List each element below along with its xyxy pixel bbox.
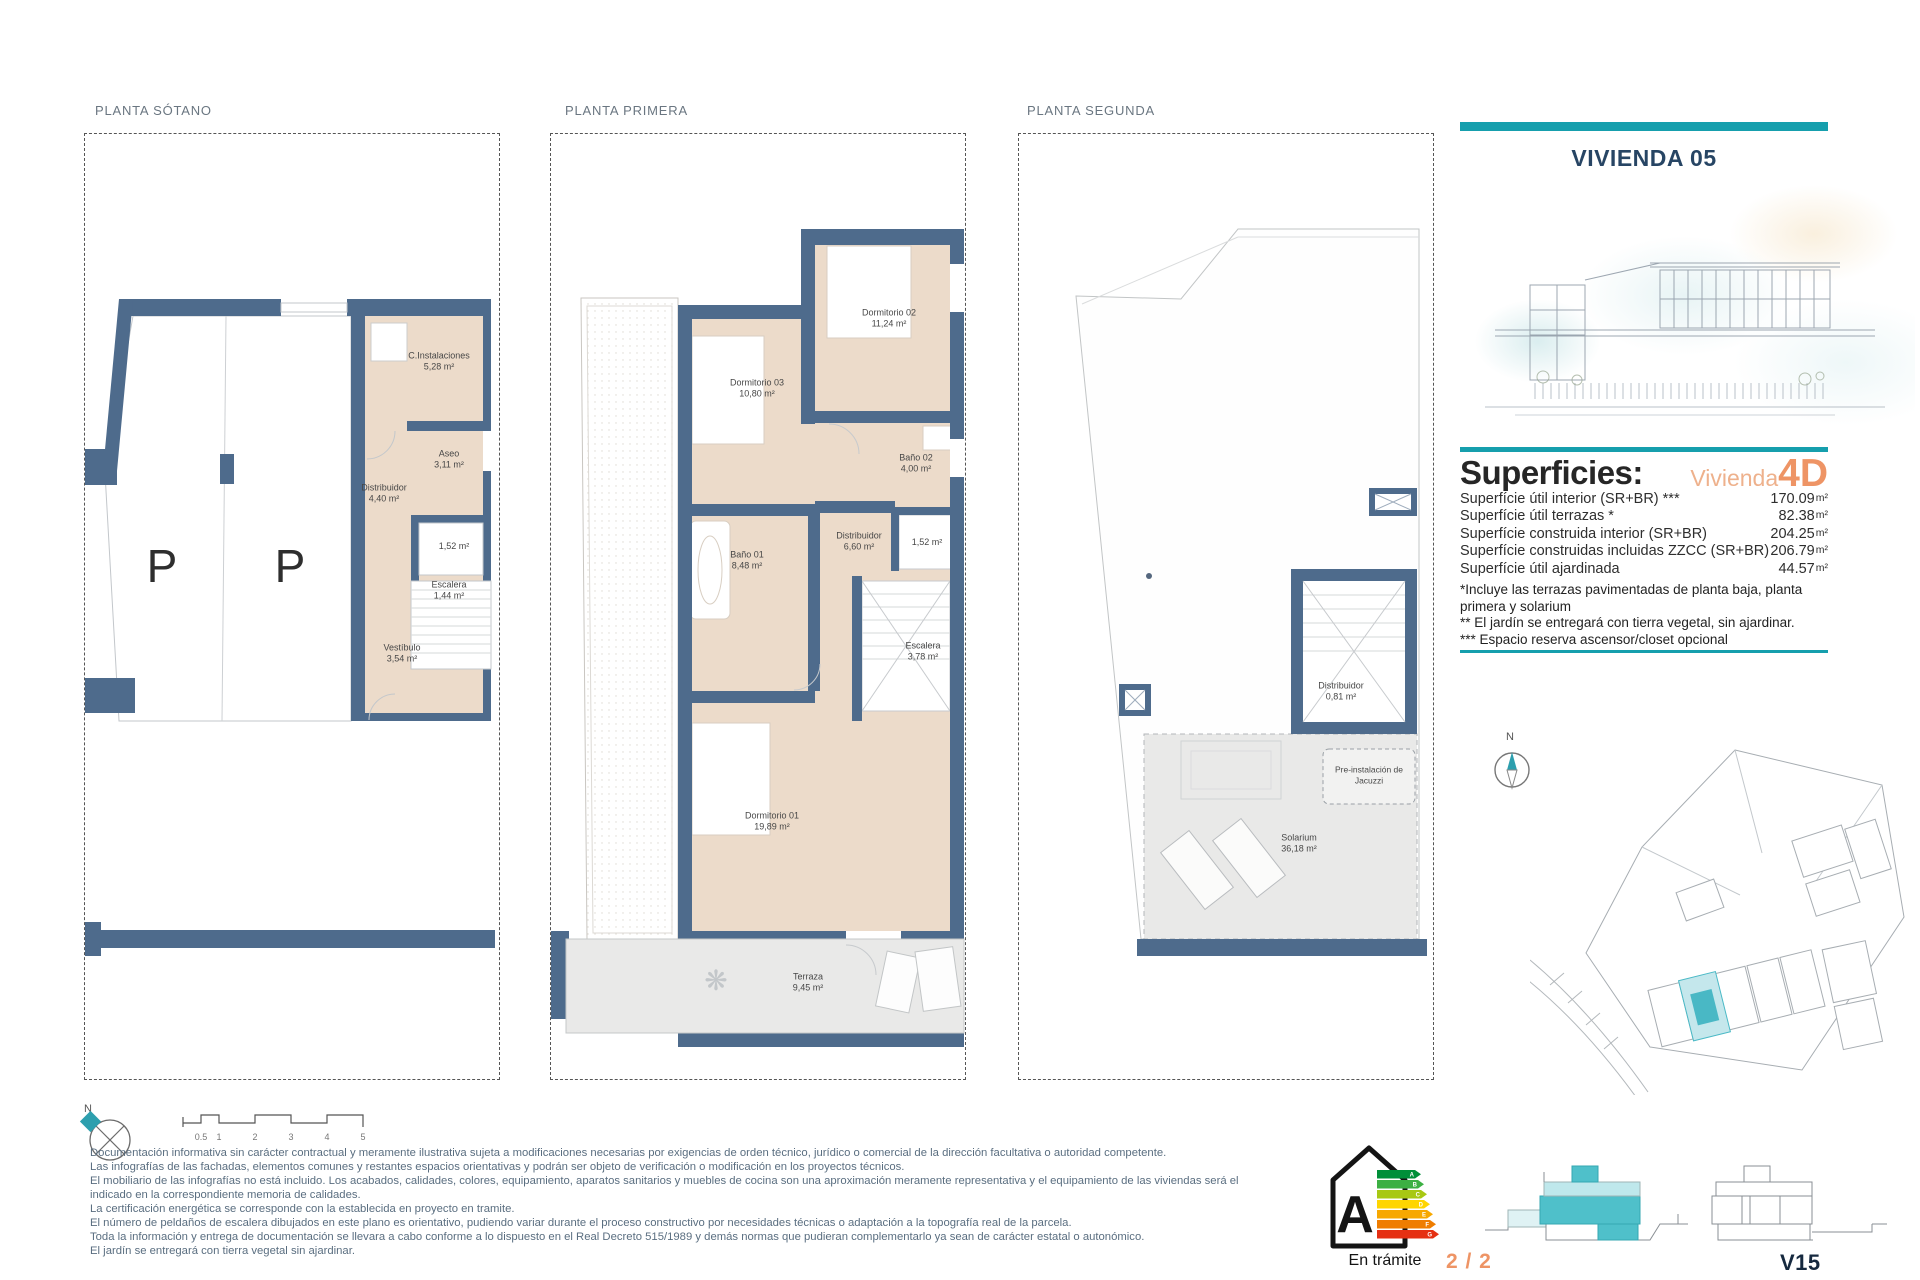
svg-text:A: A — [1410, 1173, 1415, 1179]
room-label: Escalera1,44 m² — [431, 580, 466, 601]
parking-mark: P — [275, 539, 306, 593]
superficies-notes: *Incluye las terrazas pavimentadas de pl… — [1460, 582, 1828, 648]
unit-code: 4D — [1778, 452, 1828, 495]
segunda-drawing — [1019, 134, 1435, 1081]
room-label: C.Instalaciones5,28 m² — [408, 351, 470, 372]
exterior-render — [1455, 175, 1915, 443]
scale-tick: 3 — [288, 1132, 293, 1142]
notes-underline-bar — [1460, 650, 1828, 653]
scale-bar — [175, 1105, 385, 1150]
section-diagrams — [1480, 1140, 1920, 1260]
section-outline — [1712, 1166, 1887, 1240]
room-label: Vestíbulo3,54 m² — [383, 643, 420, 664]
render-sketch-icon — [1455, 175, 1915, 443]
superficies-header: Superficies: Vivienda4D — [1460, 454, 1828, 492]
primera-drawing: ❋ — [551, 134, 967, 1081]
parking-mark: P — [147, 539, 178, 593]
section-highlighted — [1485, 1166, 1688, 1240]
svg-text:F: F — [1425, 1223, 1429, 1229]
sotano-drawing — [85, 134, 501, 1081]
unit-label: Vivienda — [1690, 465, 1778, 491]
room-label: 1,52 m² — [439, 541, 470, 552]
header-accent-bar — [1460, 122, 1828, 131]
plan-title-segunda: PLANTA SEGUNDA — [1027, 103, 1155, 118]
scale-tick: 0.5 — [195, 1132, 208, 1142]
scale-tick: 4 — [324, 1132, 329, 1142]
energy-status: En trámite — [1325, 1252, 1445, 1270]
room-label: Distribuidor6,60 m² — [836, 531, 882, 552]
room-label: Escalera3,78 m² — [905, 641, 940, 662]
superficies-heading: Superficies: — [1460, 454, 1643, 492]
energy-rating-icon: A B C D E F G A — [1325, 1142, 1443, 1254]
floorplan-sotano: P P C.Instalaciones5,28 m² Aseo3,11 m² D… — [84, 133, 500, 1080]
room-label: Dormitorio 0119,89 m² — [745, 811, 799, 832]
page-title: VIVIENDA 05 — [1460, 145, 1828, 172]
room-label: 1,52 m² — [912, 537, 943, 548]
plan-title-sotano: PLANTA SÓTANO — [95, 103, 212, 118]
site-plan-map — [1530, 735, 1915, 1095]
svg-text:G: G — [1427, 1233, 1432, 1239]
room-label: Baño 024,00 m² — [899, 453, 933, 474]
floorplan-segunda: Distribuidor0,81 m² Pre-instalación de J… — [1018, 133, 1434, 1080]
legal-disclaimer: Documentación informativa sin carácter c… — [90, 1146, 1239, 1258]
plant-icon: ❋ — [704, 965, 727, 996]
svg-text:N: N — [1506, 731, 1514, 743]
svg-text:C: C — [1416, 1193, 1421, 1199]
scale-tick: 2 — [252, 1132, 257, 1142]
plan-sheet: { "header": { "title": "VIVIENDA 05" }, … — [0, 0, 1920, 1280]
room-label: Terraza9,45 m² — [793, 972, 824, 993]
room-label: Distribuidor4,40 m² — [361, 483, 407, 504]
table-row: Superfície construida interior (SR+BR)20… — [1460, 526, 1828, 543]
table-row: Superfície útil ajardinada44.57m² — [1460, 561, 1828, 578]
floorplan-primera: ❋ Dormitorio 0211,24 m² Dormitorio 0310,… — [550, 133, 966, 1080]
table-row: Superfície construidas incluidas ZZCC (S… — [1460, 543, 1828, 560]
room-label: Dormitorio 0211,24 m² — [862, 308, 916, 329]
svg-text:B: B — [1413, 1183, 1418, 1189]
energy-rating-letter: A — [1336, 1186, 1374, 1244]
room-label: Aseo3,11 m² — [434, 449, 464, 470]
svg-text:E: E — [1422, 1213, 1426, 1219]
superficies-accent-bar — [1460, 447, 1828, 452]
table-row: Superfície útil interior (SR+BR) ***170.… — [1460, 491, 1828, 508]
superficies-table: Superfície útil interior (SR+BR) ***170.… — [1460, 491, 1828, 578]
scale-tick: 5 — [360, 1132, 365, 1142]
room-label: Pre-instalación de Jacuzzi — [1329, 765, 1409, 786]
room-label: Solarium36,18 m² — [1281, 833, 1317, 854]
table-row: Superfície útil terrazas *82.38m² — [1460, 508, 1828, 525]
room-label: Baño 018,48 m² — [730, 550, 764, 571]
sheet-code: V15 — [1780, 1250, 1821, 1276]
plan-title-primera: PLANTA PRIMERA — [565, 103, 688, 118]
page-indicator: 2 / 2 — [1446, 1250, 1492, 1274]
scale-tick: 1 — [216, 1132, 221, 1142]
room-label: Distribuidor0,81 m² — [1318, 681, 1364, 702]
room-label: Dormitorio 0310,80 m² — [730, 378, 784, 399]
svg-text:D: D — [1419, 1203, 1424, 1209]
